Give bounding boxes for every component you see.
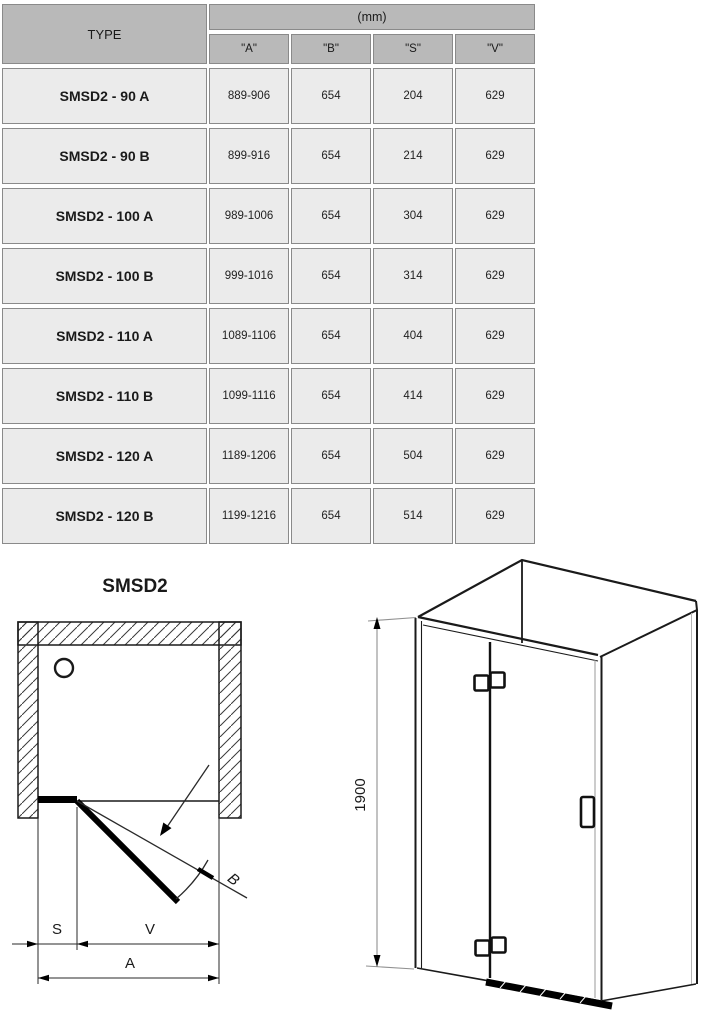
vertical-edges	[416, 610, 698, 1000]
type-cell: SMSD2 - 100 B	[2, 248, 207, 304]
b-cell: 654	[291, 488, 371, 544]
b-cell: 654	[291, 128, 371, 184]
b-cell: 654	[291, 68, 371, 124]
table-row: SMSD2 - 90 B 899-916 654 214 629	[2, 128, 535, 184]
threshold-bar	[486, 982, 612, 1006]
table-row: SMSD2 - 110 B 1099-1116 654 414 629	[2, 368, 535, 424]
table-row: SMSD2 - 110 A 1089-1106 654 404 629	[2, 308, 535, 364]
s-cell: 514	[373, 488, 453, 544]
dim-label-v: V	[145, 921, 155, 938]
iso-view-diagram: 1900	[340, 540, 701, 1010]
dim-label-a: A	[125, 955, 135, 972]
top-hinge-icon	[475, 673, 505, 691]
v-cell: 629	[455, 128, 535, 184]
s-cell: 314	[373, 248, 453, 304]
door-handle-icon	[581, 797, 594, 827]
s-cell: 414	[373, 368, 453, 424]
height-dimension: 1900	[352, 617, 416, 969]
type-cell: SMSD2 - 120 B	[2, 488, 207, 544]
table-row: SMSD2 - 100 B 999-1016 654 314 629	[2, 248, 535, 304]
type-cell: SMSD2 - 110 B	[2, 368, 207, 424]
plan-view-diagram: SMSD2	[0, 540, 300, 1010]
unit-header: (mm)	[209, 4, 535, 30]
b-cell: 654	[291, 368, 371, 424]
s-cell: 304	[373, 188, 453, 244]
a-cell: 1099-1116	[209, 368, 289, 424]
b-cell: 654	[291, 308, 371, 364]
plan-title: SMSD2	[102, 576, 167, 597]
bottom-hinge-icon	[476, 938, 506, 956]
s-cell: 204	[373, 68, 453, 124]
type-cell: SMSD2 - 120 A	[2, 428, 207, 484]
catalog-page: TYPE (mm) "A" "B" "S" "V" SMSD2 - 90 A 8…	[0, 0, 701, 1010]
v-cell: 629	[455, 368, 535, 424]
column-header-b: "B"	[291, 34, 371, 64]
type-column-header: TYPE	[2, 4, 207, 64]
table-row: SMSD2 - 120 B 1199-1216 654 514 629	[2, 488, 535, 544]
a-cell: 989-1006	[209, 188, 289, 244]
table-row: SMSD2 - 90 A 889-906 654 204 629	[2, 68, 535, 124]
dimensions-table: TYPE (mm) "A" "B" "S" "V" SMSD2 - 90 A 8…	[0, 0, 537, 548]
enclosure-rim	[418, 560, 697, 661]
a-cell: 1189-1206	[209, 428, 289, 484]
door-geometry	[38, 765, 247, 902]
type-cell: SMSD2 - 110 A	[2, 308, 207, 364]
type-cell: SMSD2 - 100 A	[2, 188, 207, 244]
b-cell: 654	[291, 428, 371, 484]
a-cell: 889-906	[209, 68, 289, 124]
swing-arrow-line	[167, 765, 209, 827]
v-cell: 629	[455, 68, 535, 124]
dimension-arrows	[27, 941, 219, 981]
b-cell: 654	[291, 188, 371, 244]
s-cell: 214	[373, 128, 453, 184]
column-header-v: "V"	[455, 34, 535, 64]
v-cell: 629	[455, 488, 535, 544]
hatched-walls	[18, 622, 241, 818]
a-cell: 999-1016	[209, 248, 289, 304]
type-cell: SMSD2 - 90 A	[2, 68, 207, 124]
v-cell: 629	[455, 428, 535, 484]
v-cell: 629	[455, 188, 535, 244]
b-cell: 654	[291, 248, 371, 304]
s-cell: 404	[373, 308, 453, 364]
dimension-lines	[12, 807, 219, 984]
table-row: SMSD2 - 100 A 989-1006 654 304 629	[2, 188, 535, 244]
v-cell: 629	[455, 248, 535, 304]
swing-arc	[176, 860, 208, 899]
shower-head-symbol	[55, 659, 73, 677]
v-cell: 629	[455, 308, 535, 364]
column-header-s: "S"	[373, 34, 453, 64]
height-label: 1900	[352, 778, 369, 811]
a-cell: 899-916	[209, 128, 289, 184]
a-cell: 1199-1216	[209, 488, 289, 544]
door-open-line	[77, 801, 178, 902]
a-cell: 1089-1106	[209, 308, 289, 364]
s-cell: 504	[373, 428, 453, 484]
dim-label-s: S	[52, 921, 62, 938]
table-row: SMSD2 - 120 A 1189-1206 654 504 629	[2, 428, 535, 484]
type-cell: SMSD2 - 90 B	[2, 128, 207, 184]
column-header-a: "A"	[209, 34, 289, 64]
swing-arrow-head	[160, 823, 172, 837]
